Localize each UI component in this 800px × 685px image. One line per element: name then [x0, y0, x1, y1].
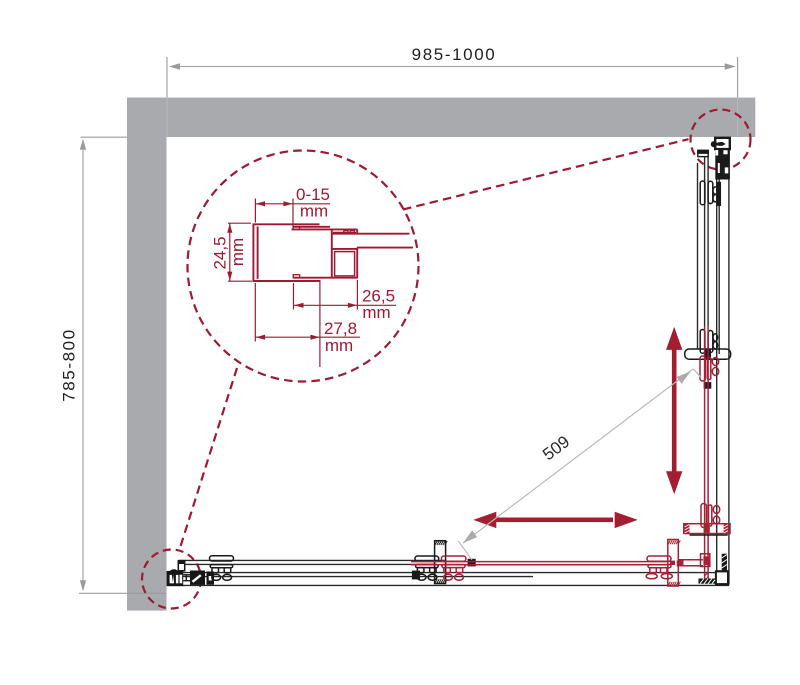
svg-text:mm: mm — [228, 238, 247, 266]
svg-text:mm: mm — [325, 336, 353, 355]
svg-text:mm: mm — [300, 202, 328, 221]
svg-text:mm: mm — [362, 303, 390, 322]
svg-text:24,5: 24,5 — [210, 236, 229, 269]
svg-text:985-1000: 985-1000 — [412, 45, 497, 64]
svg-text:785-800: 785-800 — [60, 328, 79, 402]
